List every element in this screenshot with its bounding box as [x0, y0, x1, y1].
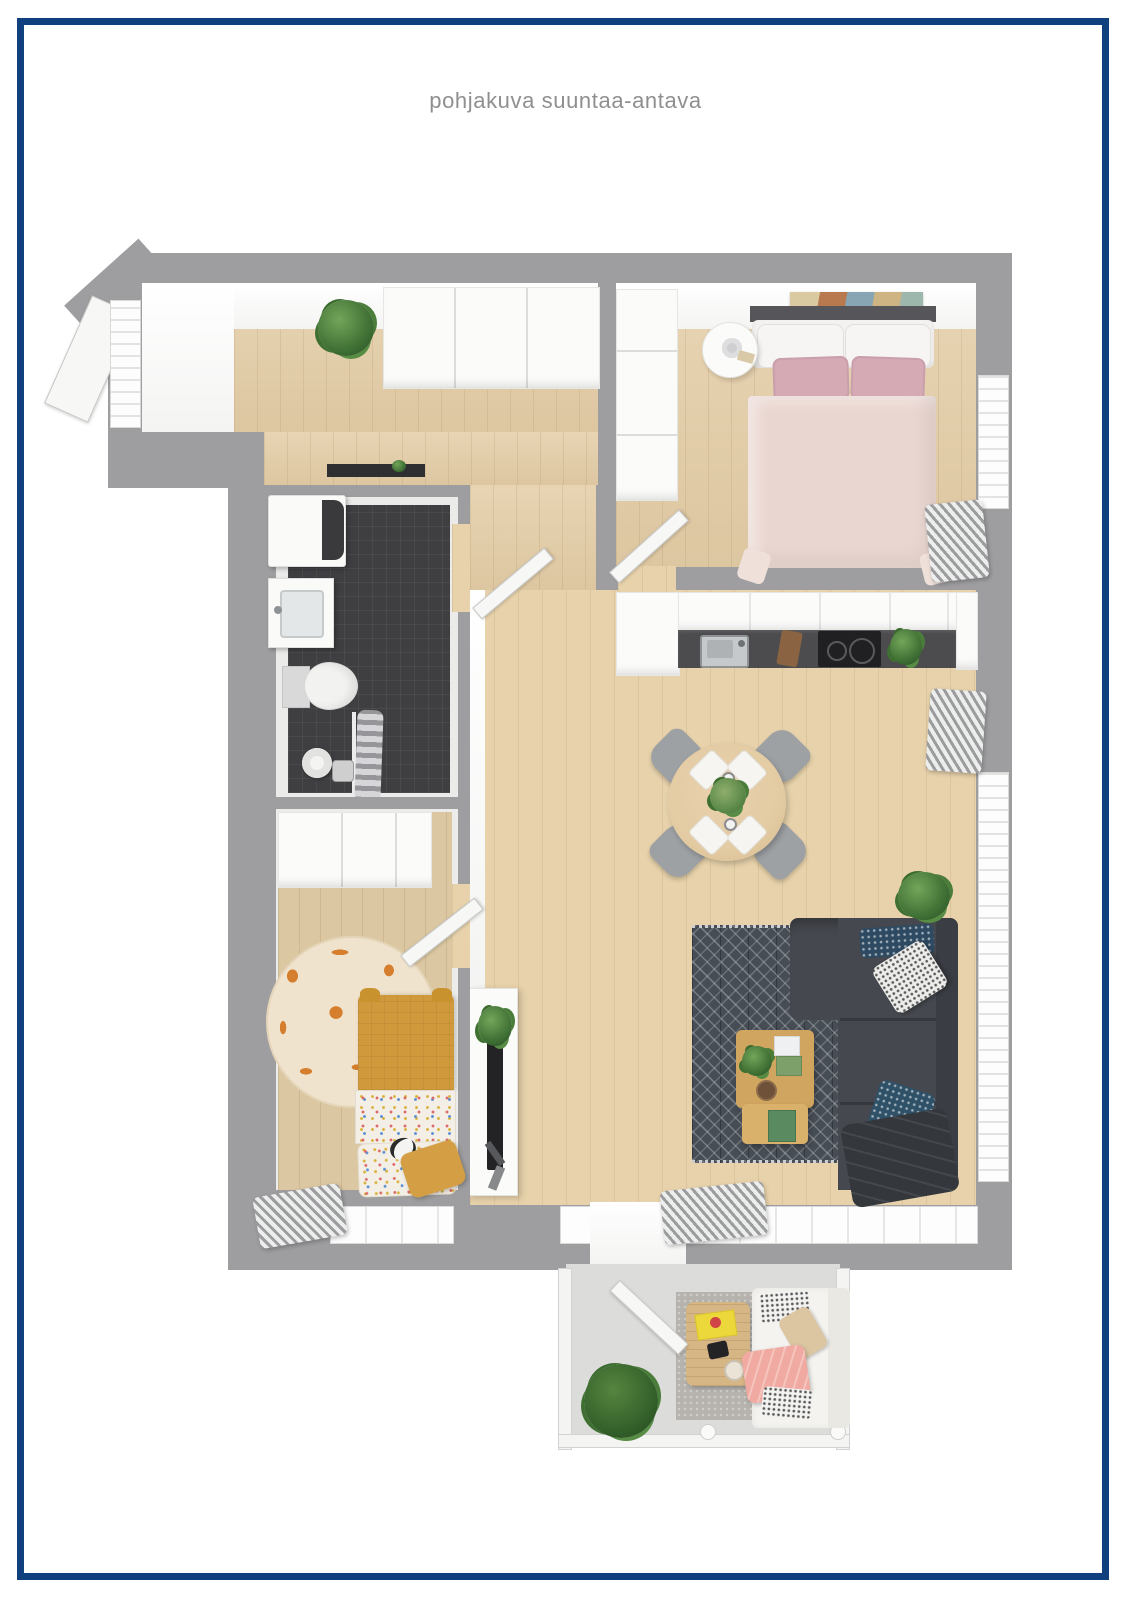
sofa-seam: [840, 1018, 936, 1021]
kitchen-herb-plant: [890, 629, 922, 665]
wall-left-lower: [228, 486, 264, 1262]
cooktop-burner-small: [827, 641, 847, 661]
kids-bed-sheet: [355, 1090, 456, 1144]
kitchen-faucet: [738, 640, 745, 647]
lower-tier-magazine: [768, 1110, 796, 1142]
wall-top: [140, 253, 1012, 283]
bedroom-radiator: [924, 499, 990, 583]
living-left-wall-face: [470, 590, 485, 990]
bedroom-window: [978, 375, 1009, 509]
wall-left-notch: [108, 432, 264, 488]
kids-window-bottom: [330, 1206, 454, 1244]
living-window-right: [978, 772, 1009, 1182]
balcony-book-dot: [710, 1317, 721, 1328]
entry-floor-lower: [264, 432, 598, 485]
dining-centerpiece: [710, 778, 746, 814]
kids-bed-duvet: [358, 995, 454, 1090]
kitchen-end-cabinet: [956, 592, 978, 670]
bed-duvet: [748, 396, 936, 568]
bathroom-sink-basin: [280, 590, 324, 638]
balcony-sofa-backrest: [828, 1288, 850, 1428]
washing-machine-door: [322, 500, 344, 560]
living-radiator-right: [925, 688, 987, 774]
kitchen-sink-basin: [707, 640, 733, 658]
kids-bed-headrest: [360, 988, 380, 1002]
coffee-table-bowl: [756, 1080, 777, 1101]
kitchen-tall-cabinet: [616, 592, 680, 676]
entry-left-wall-face: [142, 283, 234, 432]
kitchen-upper-cabinets: [678, 592, 978, 632]
laundry-shelf: [327, 464, 425, 477]
shower-mixer: [332, 760, 354, 782]
sofa-side-plant: [898, 872, 950, 920]
laundry-shelf-plant: [392, 460, 406, 472]
balcony-cushion-bw: [761, 1386, 813, 1420]
sink-faucet: [274, 606, 282, 614]
bathroom-doorway-floor: [452, 524, 470, 612]
kids-wardrobe: [278, 812, 432, 888]
coffee-table-plant: [742, 1046, 772, 1076]
entry-plant: [318, 300, 374, 356]
living-radiator-bottom: [659, 1181, 768, 1246]
balcony-rail-left: [558, 1268, 572, 1450]
floor-plan: [0, 0, 1131, 1600]
cooktop-burner-large: [849, 638, 875, 664]
entry-window: [110, 300, 141, 428]
dining-cup: [724, 818, 737, 831]
shower-curtain: [354, 710, 383, 803]
bedroom-wardrobe: [616, 289, 678, 501]
coffee-table-book: [776, 1056, 802, 1076]
balcony-plant: [584, 1364, 658, 1438]
floor-plan-page: pohjakuva suuntaa-antava: [0, 0, 1131, 1600]
shower-head: [302, 748, 332, 778]
kids-bed-headrest: [432, 988, 452, 1002]
tv-bench-plant: [478, 1006, 512, 1046]
coffee-table-book: [774, 1036, 800, 1056]
entry-wardrobe: [383, 287, 600, 389]
balcony-rail-post: [700, 1424, 716, 1440]
